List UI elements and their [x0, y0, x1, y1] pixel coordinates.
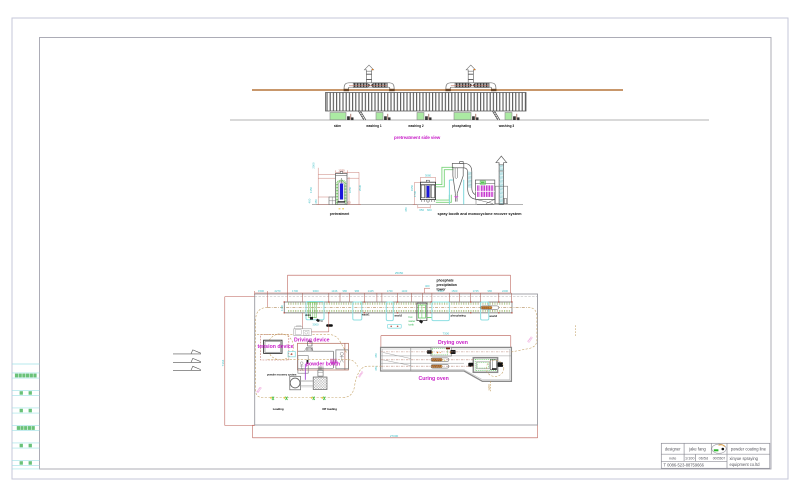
svg-text:986: 986 [487, 289, 492, 293]
svg-text:1700: 1700 [387, 289, 393, 293]
svg-text:wash2: wash2 [394, 315, 402, 318]
svg-text:1436: 1436 [331, 289, 337, 293]
svg-text:phosphating: phosphating [451, 315, 466, 318]
svg-text:Drying oven: Drying oven [438, 340, 468, 346]
svg-text:T 0086-523-88759666: T 0086-523-88759666 [664, 463, 705, 468]
svg-text:3080: 3080 [425, 174, 432, 178]
svg-text:pretreatment side view: pretreatment side view [394, 135, 441, 140]
svg-text:1200: 1200 [487, 384, 491, 391]
svg-text:designer: designer [665, 447, 681, 452]
svg-text:wash1: wash1 [362, 314, 370, 317]
svg-text:450: 450 [314, 199, 318, 204]
svg-text:jake fang: jake fang [688, 447, 706, 452]
svg-text:Driving device: Driving device [294, 338, 330, 344]
svg-text:1100: 1100 [402, 289, 408, 293]
svg-text:660: 660 [427, 208, 432, 212]
svg-text:1500: 1500 [451, 289, 457, 293]
svg-text:tower: tower [437, 288, 447, 292]
svg-text:phosphate: phosphate [437, 279, 454, 283]
svg-text:7300: 7300 [442, 332, 449, 336]
svg-text:450: 450 [374, 366, 378, 371]
svg-text:0005607: 0005607 [713, 456, 726, 460]
svg-text:1745: 1745 [473, 289, 479, 293]
svg-text:25050: 25050 [395, 271, 404, 275]
svg-text:powder coating line: powder coating line [731, 447, 767, 452]
svg-text:1150: 1150 [309, 187, 313, 193]
svg-text:washing 1: washing 1 [365, 124, 382, 128]
svg-text:1/100: 1/100 [685, 456, 695, 460]
svg-text:400: 400 [308, 198, 312, 203]
svg-text:2000: 2000 [312, 162, 316, 169]
svg-text:tension device: tension device [258, 344, 294, 350]
svg-text:1700: 1700 [292, 289, 298, 293]
svg-text:1500: 1500 [258, 289, 264, 293]
svg-text:7364: 7364 [221, 359, 225, 366]
svg-text:equipment co.ltd: equipment co.ltd [730, 462, 761, 467]
svg-text:1445: 1445 [368, 289, 374, 293]
svg-text:precipitation: precipitation [437, 283, 457, 287]
svg-text:powder booth: powder booth [306, 362, 340, 368]
svg-text:Off loading: Off loading [322, 407, 337, 411]
svg-text:wash3: wash3 [489, 315, 497, 318]
svg-text:Curing oven: Curing oven [419, 376, 449, 382]
svg-text:400: 400 [425, 284, 430, 288]
svg-text:1950: 1950 [410, 184, 414, 191]
svg-text:washing 3: washing 3 [498, 124, 515, 128]
svg-text:pump: pump [317, 321, 324, 323]
svg-text:phosphating: phosphating [452, 124, 471, 128]
svg-text:note: note [669, 456, 676, 460]
svg-text:06/5d: 06/5d [699, 456, 709, 460]
svg-text:1250: 1250 [348, 186, 352, 193]
svg-text:450: 450 [374, 353, 378, 358]
svg-text:3530: 3530 [358, 184, 362, 191]
svg-text:650: 650 [419, 208, 424, 212]
svg-text:3000: 3000 [312, 323, 319, 327]
svg-text:skim: skim [305, 314, 311, 317]
svg-text:450: 450 [404, 207, 408, 212]
svg-text:986: 986 [342, 289, 347, 293]
svg-text:1100: 1100 [280, 305, 284, 311]
svg-text:xinyue spraying: xinyue spraying [730, 456, 759, 461]
svg-text:2200: 2200 [502, 289, 508, 293]
svg-text:skim: skim [334, 124, 341, 128]
svg-text:2270: 2270 [275, 289, 281, 293]
svg-text:washing 2: washing 2 [407, 124, 424, 128]
svg-text:powder recovery system: powder recovery system [267, 373, 297, 376]
svg-text:986: 986 [355, 289, 360, 293]
svg-text:spray booth and monocyclone re: spray booth and monocyclone recover syst… [438, 212, 523, 216]
svg-text:tank: tank [409, 323, 415, 327]
svg-text:pretreatment: pretreatment [330, 212, 350, 216]
svg-text:27000: 27000 [390, 434, 399, 438]
svg-text:1730: 1730 [413, 190, 417, 197]
svg-text:3000: 3000 [313, 289, 319, 293]
svg-text:Loading: Loading [273, 407, 284, 411]
